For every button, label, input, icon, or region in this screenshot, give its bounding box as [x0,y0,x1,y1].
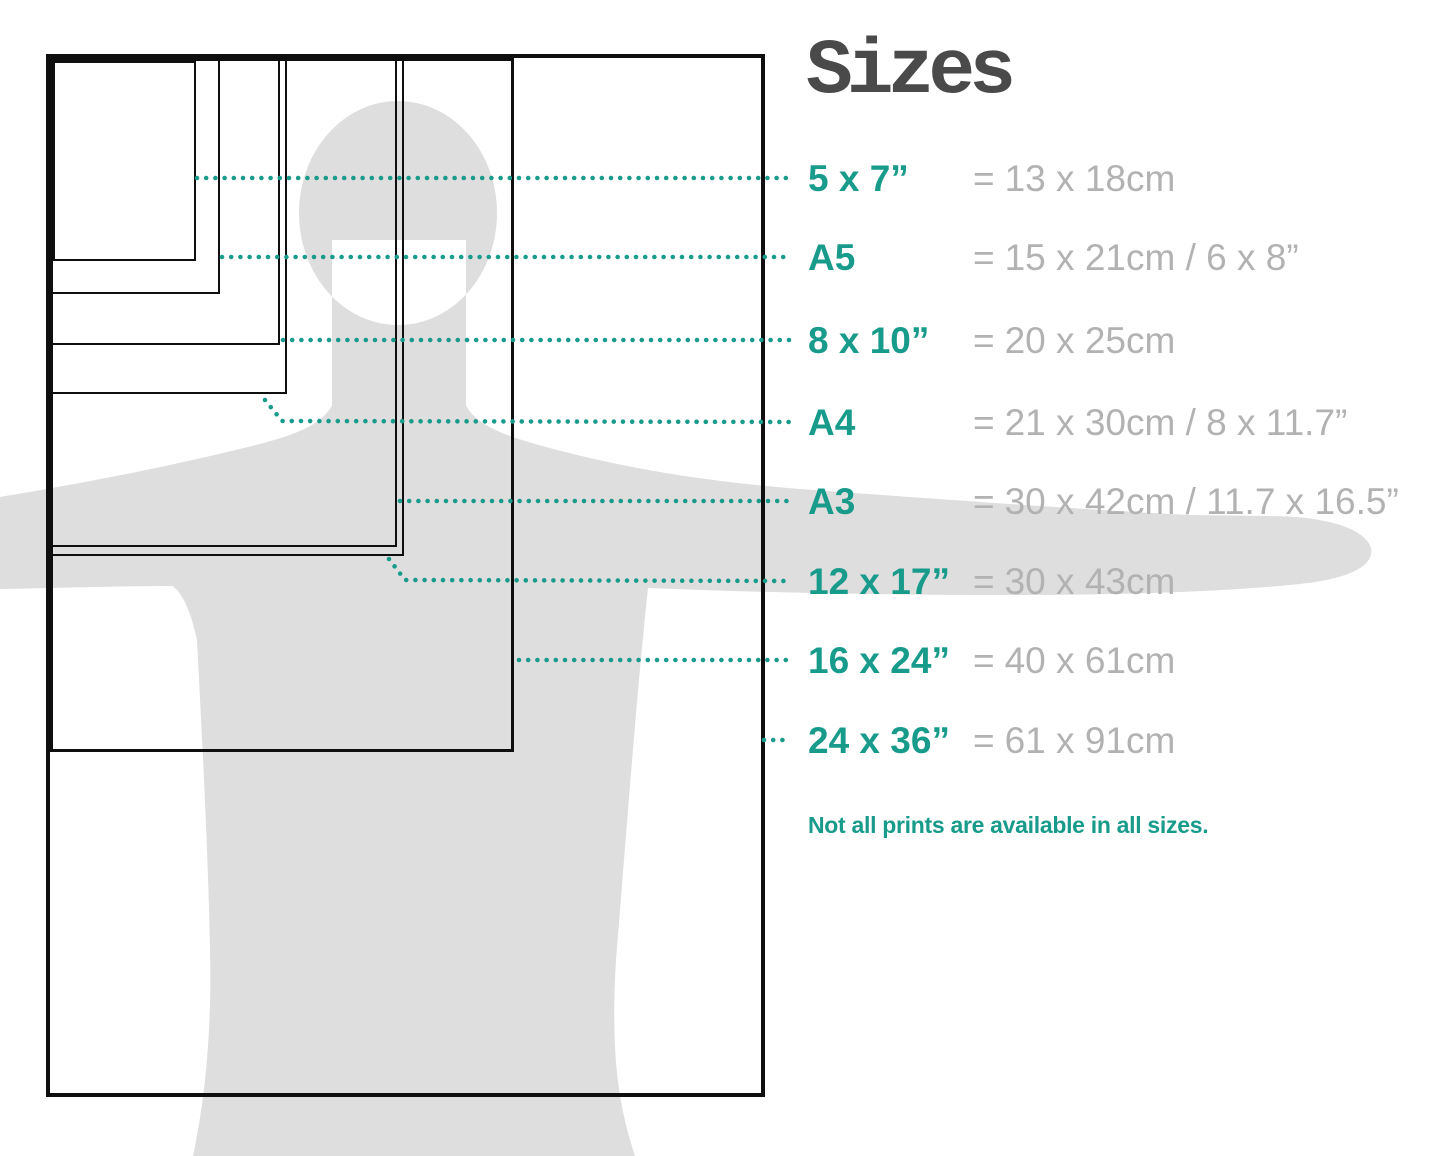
size-row-a4: A4 = 21 x 30cm / 8 x 11.7” [808,404,1347,441]
size-metric: 13 x 18cm [1005,160,1176,197]
size-label: A3 [808,483,973,520]
size-label: A5 [808,239,973,276]
equals-sign: = [973,722,995,759]
size-row-24x36: 24 x 36” = 61 x 91cm [808,722,1175,759]
size-metric: 15 x 21cm / 6 x 8” [1005,239,1299,276]
leader-lines [0,0,1445,1156]
size-label: 5 x 7” [808,160,973,197]
size-label: 8 x 10” [808,322,973,359]
size-metric: 61 x 91cm [1005,722,1176,759]
size-metric: 30 x 43cm [1005,563,1176,600]
size-label: 16 x 24” [808,642,973,679]
size-label: 24 x 36” [808,722,973,759]
size-metric: 30 x 42cm / 11.7 x 16.5” [1005,483,1399,520]
size-row-a3: A3 = 30 x 42cm / 11.7 x 16.5” [808,483,1399,520]
size-row-16x24: 16 x 24” = 40 x 61cm [808,642,1175,679]
size-row-12x17: 12 x 17” = 30 x 43cm [808,563,1175,600]
equals-sign: = [973,483,995,520]
size-metric: 21 x 30cm / 8 x 11.7” [1005,404,1348,441]
size-label: 12 x 17” [808,563,973,600]
equals-sign: = [973,160,995,197]
size-row-a5: A5 = 15 x 21cm / 6 x 8” [808,239,1299,276]
equals-sign: = [973,322,995,359]
size-row-8x10: 8 x 10” = 20 x 25cm [808,322,1175,359]
equals-sign: = [973,642,995,679]
size-chart-canvas: Sizes 5 x 7” = 13 x 18cm A5 = 15 x 21cm … [0,0,1445,1156]
leader-dotted-lines [197,178,792,740]
size-label: A4 [808,404,973,441]
size-metric: 20 x 25cm [1005,322,1176,359]
page-title: Sizes [806,30,1010,116]
equals-sign: = [973,563,995,600]
availability-note: Not all prints are available in all size… [808,812,1208,840]
size-row-5x7: 5 x 7” = 13 x 18cm [808,160,1175,197]
equals-sign: = [973,239,995,276]
equals-sign: = [973,404,995,441]
size-metric: 40 x 61cm [1005,642,1176,679]
